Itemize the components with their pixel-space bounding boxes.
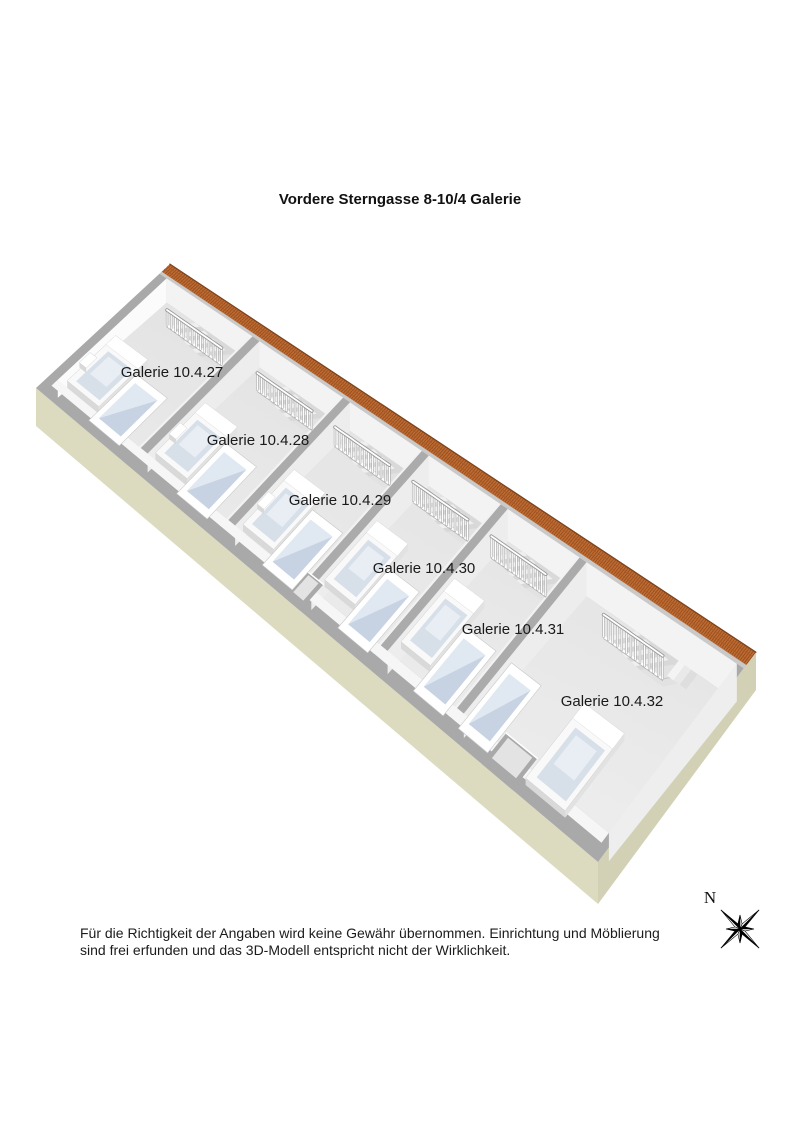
compass-point bbox=[721, 929, 740, 948]
compass-point bbox=[721, 910, 740, 929]
compass-point bbox=[740, 910, 759, 929]
page-title: Vordere Sterngasse 8-10/4 Galerie bbox=[0, 191, 800, 208]
compass-north-label: N bbox=[704, 888, 716, 907]
room-label: Galerie 10.4.32 bbox=[561, 693, 664, 710]
floorplan-3d: Galerie 10.4.27Galerie 10.4.28Galerie 10… bbox=[0, 0, 800, 1132]
disclaimer-line-1: Für die Richtigkeit der Angaben wird kei… bbox=[80, 925, 680, 942]
page: Galerie 10.4.27Galerie 10.4.28Galerie 10… bbox=[0, 0, 800, 1132]
room-label: Galerie 10.4.31 bbox=[462, 621, 565, 638]
disclaimer-line-2: sind frei erfunden und das 3D-Modell ent… bbox=[80, 942, 680, 959]
compass-star-icon bbox=[721, 910, 759, 948]
compass-point bbox=[740, 929, 759, 948]
room-label: Galerie 10.4.30 bbox=[373, 560, 476, 577]
room-label: Galerie 10.4.28 bbox=[207, 432, 310, 449]
disclaimer-text: Für die Richtigkeit der Angaben wird kei… bbox=[80, 925, 680, 958]
compass-rose: N bbox=[694, 880, 786, 980]
room-label: Galerie 10.4.27 bbox=[121, 364, 224, 381]
room-label: Galerie 10.4.29 bbox=[289, 492, 392, 509]
